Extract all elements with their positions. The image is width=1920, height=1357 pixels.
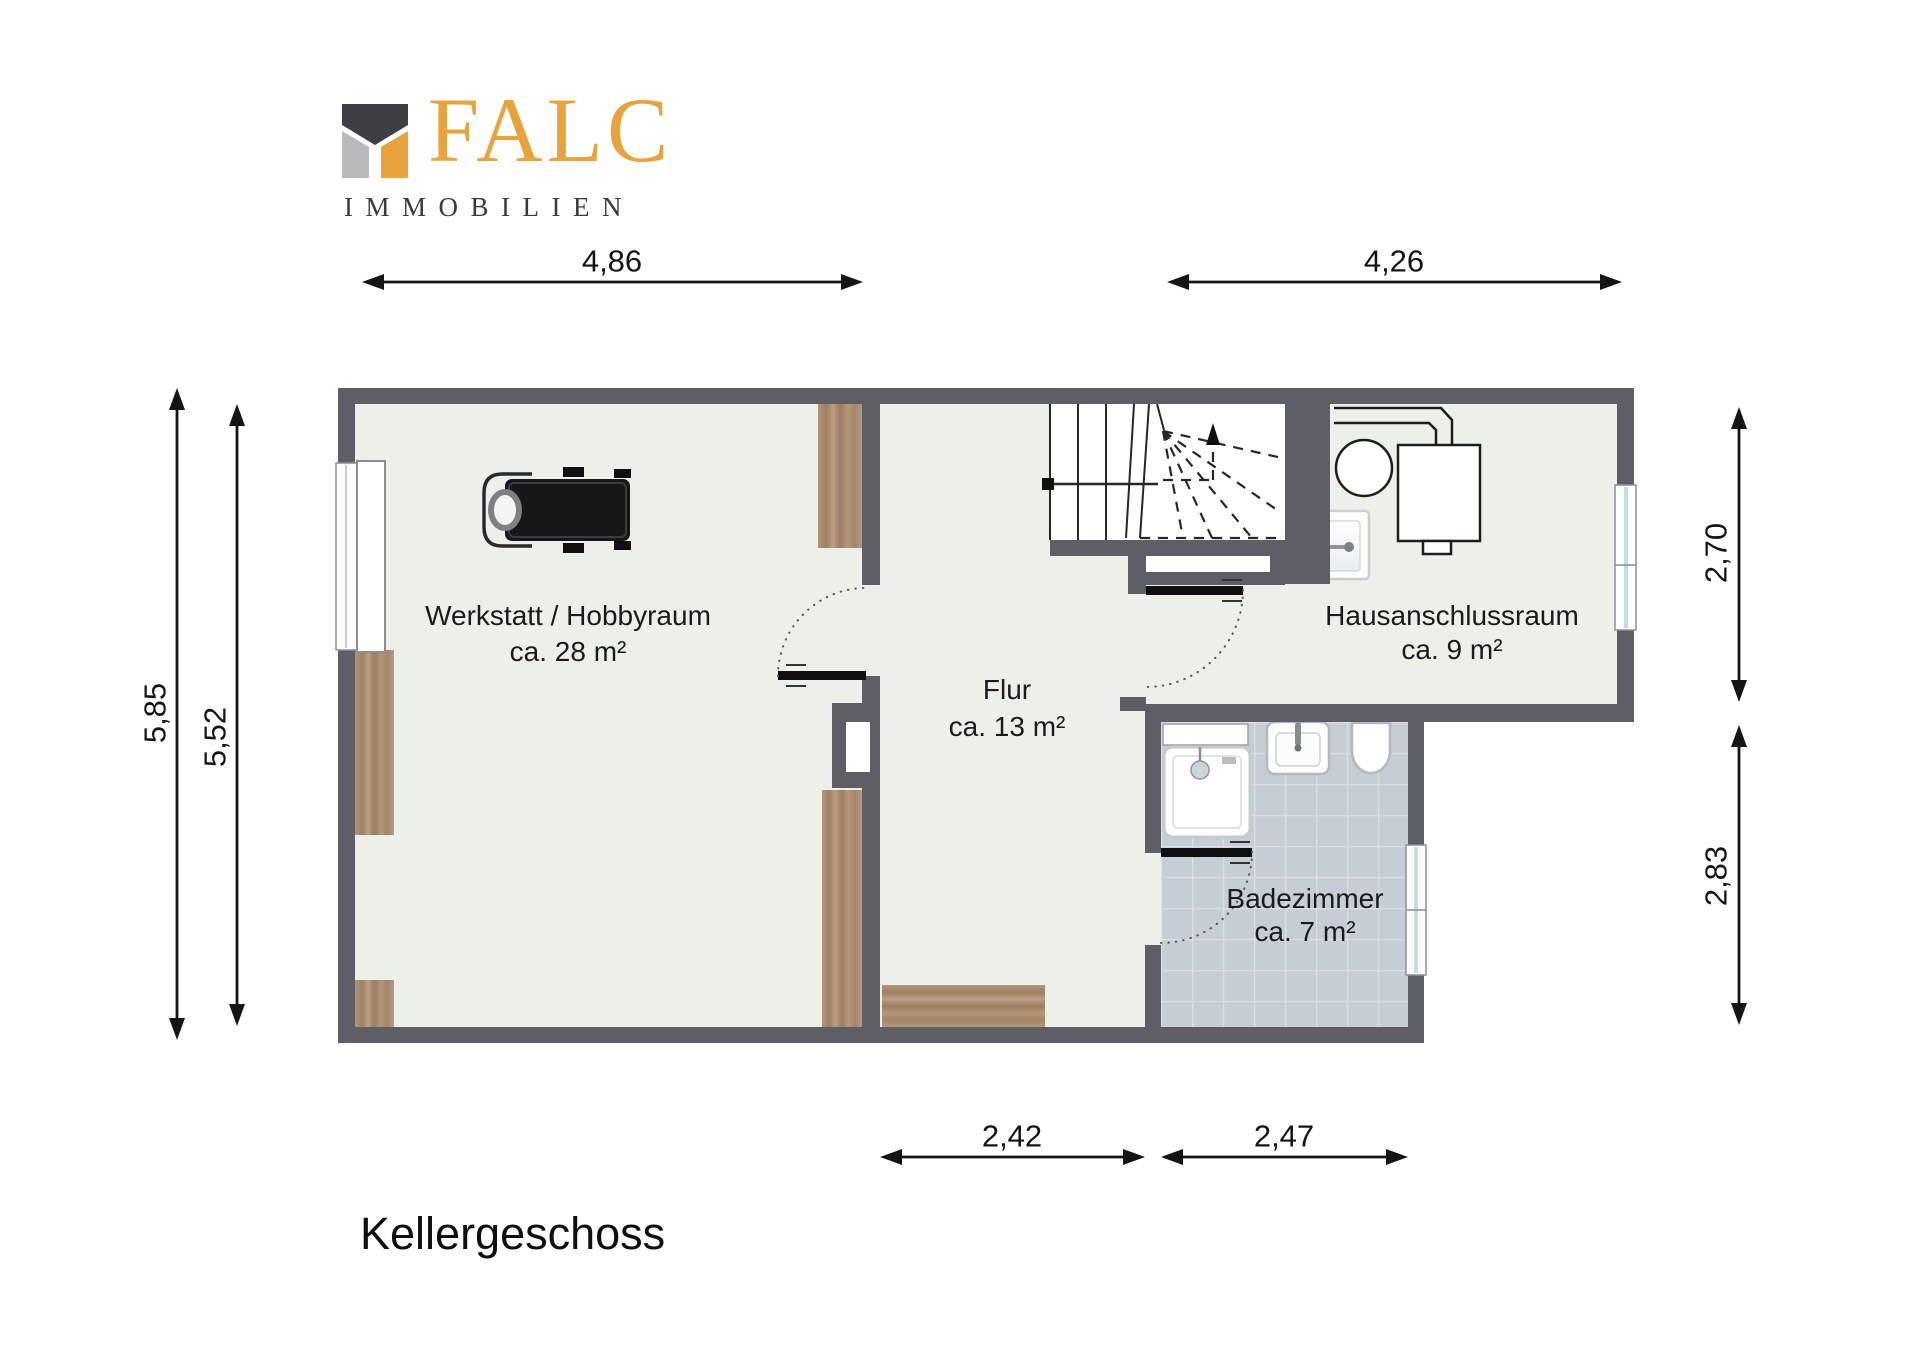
room-label-flur: Flur <box>983 673 1031 707</box>
room-area-badezimmer: ca. 7 m² <box>1254 915 1355 949</box>
floor-plan <box>0 0 1920 1357</box>
window-right <box>1615 485 1636 630</box>
wall-landing-lower <box>1146 572 1285 585</box>
door-leaf <box>1146 586 1243 595</box>
shower-icon <box>1163 724 1250 837</box>
dimension-label-left-outer: 5,85 <box>136 683 173 743</box>
door-leaf <box>778 671 866 680</box>
wall-landing-jamb <box>1128 556 1146 594</box>
room-label-werkstatt: Werkstatt / Hobbyraum <box>425 599 711 633</box>
room-area-hausanschluss: ca. 9 m² <box>1401 633 1502 667</box>
floor-plan-page: FALC IMMOBILIEN <box>0 0 1920 1357</box>
room-area-werkstatt: ca. 28 m² <box>510 635 627 669</box>
toilet-icon <box>1352 723 1390 773</box>
wall-stairs-right <box>1285 404 1330 584</box>
wall-top-outer <box>338 388 1634 404</box>
heating-unit-icon <box>1398 445 1480 554</box>
window-bath <box>1406 845 1426 975</box>
staircase-area <box>1050 404 1285 540</box>
wall-stairs-bottom <box>1050 540 1285 556</box>
dimension-label-left-inner: 5,52 <box>196 707 233 767</box>
wall-bath-left-upper <box>1145 708 1161 853</box>
room-area-flur: ca. 13 m² <box>949 710 1066 744</box>
wall-landing-corner <box>1270 556 1285 572</box>
dimension-label-right-upper: 2,70 <box>1697 523 1734 583</box>
handrail-post <box>1042 478 1054 490</box>
dimension-label-top-left: 4,86 <box>582 242 642 279</box>
plan-title: Kellergeschoss <box>360 1208 665 1260</box>
room-label-hausanschluss: Hausanschlussraum <box>1325 599 1579 633</box>
dimension-label-bottom-flur: 2,42 <box>982 1117 1042 1154</box>
washbasin-icon <box>1267 722 1329 774</box>
wall-werkstatt-upper <box>862 404 880 585</box>
wall-bottom-outer <box>338 1027 1424 1043</box>
wall-bath-left-lower <box>1145 945 1161 1027</box>
boiler-tank-icon <box>1336 440 1392 496</box>
chimney-flue <box>846 722 870 772</box>
landing-opening <box>1146 556 1270 572</box>
door-leaf <box>1161 848 1252 857</box>
window-left <box>336 461 385 652</box>
wall-bath-top <box>1145 704 1634 722</box>
dimension-label-top-right: 4,26 <box>1364 242 1424 279</box>
dimension-label-right-lower: 2,83 <box>1697 846 1734 906</box>
room-label-badezimmer: Badezimmer <box>1226 882 1383 916</box>
dimension-label-bottom-bad: 2,47 <box>1254 1117 1314 1154</box>
wall-bath-stub <box>1120 697 1146 711</box>
